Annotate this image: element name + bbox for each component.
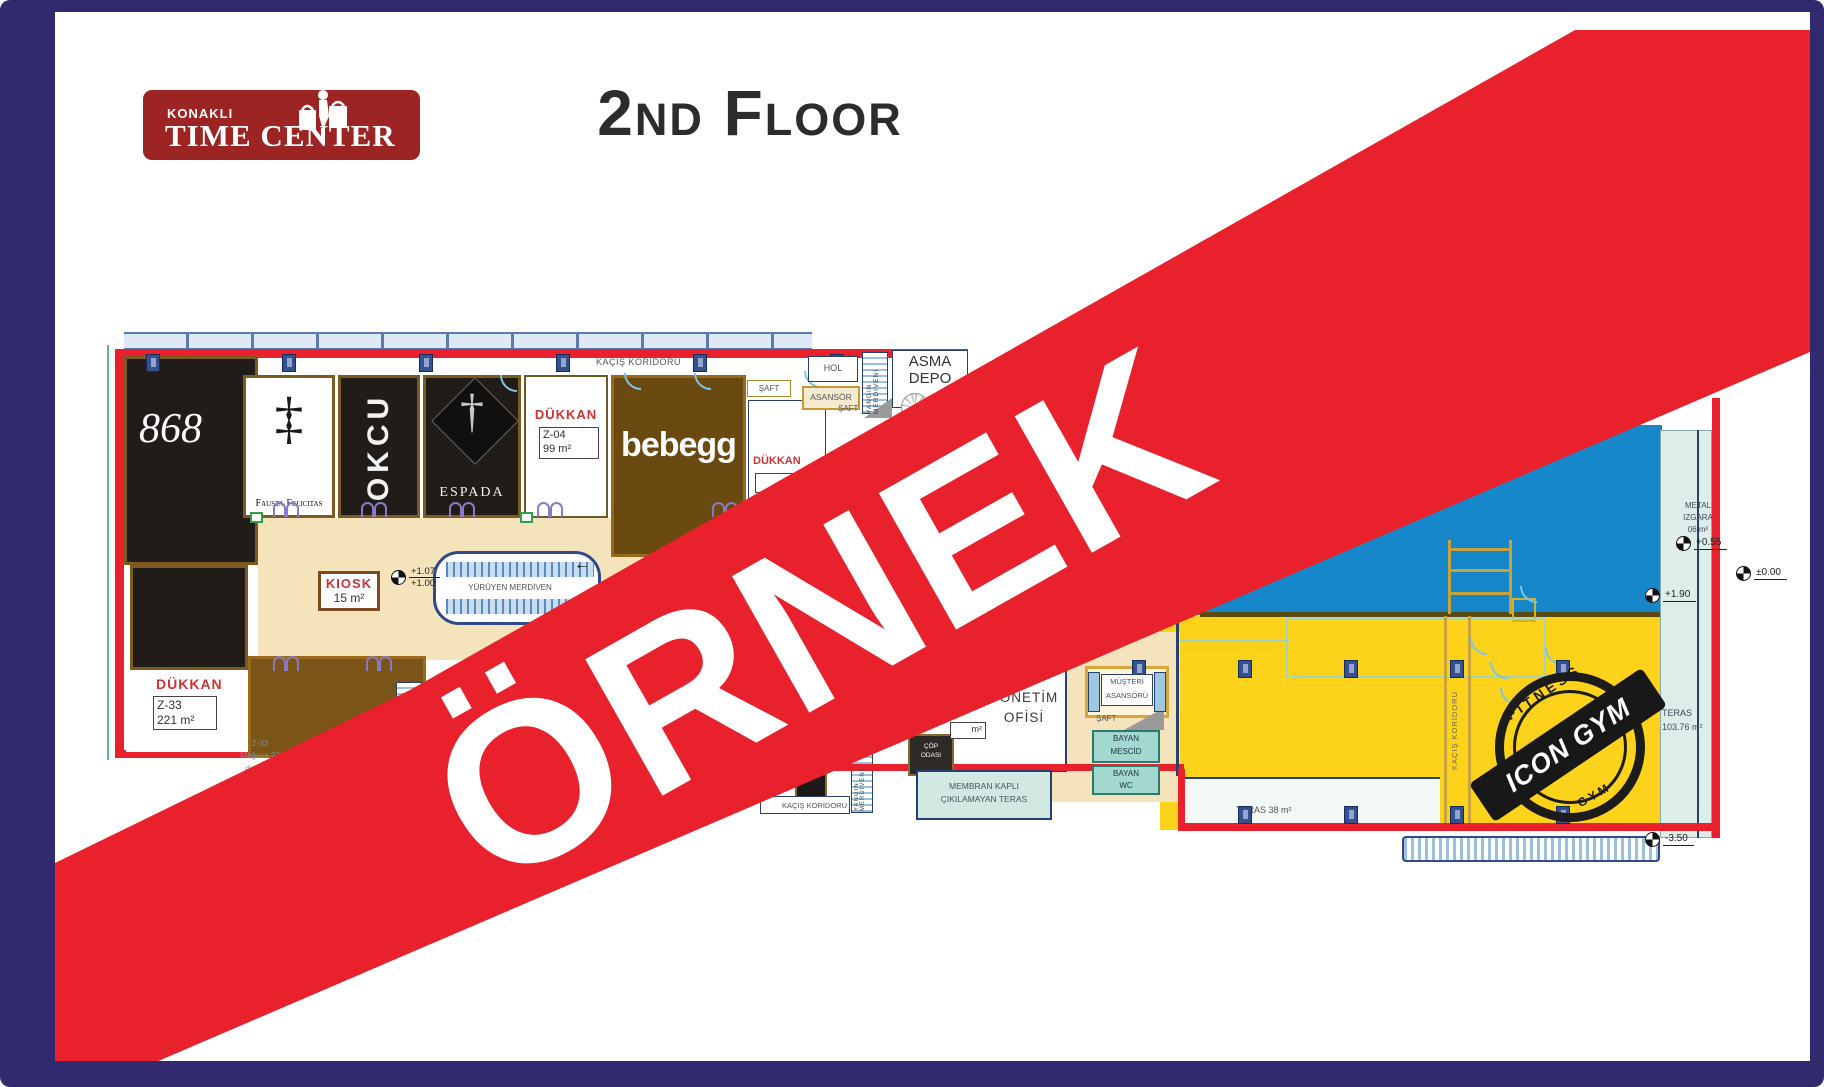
shaft-label-3: ŞAFT (1096, 714, 1116, 723)
asansor-label: ASANSÖR (804, 392, 858, 402)
yonetim-area-box: m² (950, 722, 986, 739)
column (1450, 806, 1464, 824)
column (1344, 806, 1358, 824)
column (146, 354, 160, 372)
door-clip-icon (250, 512, 263, 523)
page-title: 2nd Floor (560, 76, 940, 150)
shop-868-label: 868 (139, 405, 202, 453)
dukkan-z04-area-box: Z-04 99 m² (539, 427, 599, 459)
elevation-190: +1.90 (1663, 589, 1696, 602)
corridor-top-label: KAÇIŞ KORİDORU (596, 357, 726, 367)
elevation-000: ±0.00 (1754, 567, 1787, 580)
shop-dark-lower (130, 565, 248, 670)
membran-teras: MEMBRAN KAPLI ÇIKILAMAYAN TERAS (916, 770, 1052, 820)
room-hol: HOL (808, 356, 858, 382)
door-clip-icon (520, 512, 533, 523)
dukkan-z33-label: DÜKKAN (156, 676, 223, 692)
teal-line (1180, 640, 1290, 642)
fausta-monogram-icon: ‡ (246, 384, 332, 451)
plan-outline-step (1178, 769, 1185, 829)
dukkan-right-label: DÜKKAN (753, 455, 801, 467)
corridor-wall (1444, 616, 1447, 826)
level-icon (1645, 588, 1660, 603)
level-icon (1736, 566, 1751, 581)
room-bayan-wc: BAYAN WC (1092, 765, 1160, 795)
kiosk-box: KIOSK 15 m² (318, 571, 380, 611)
shaft-top-label: ŞAFT (748, 384, 790, 393)
membran-line1: MEMBRAN KAPLI (918, 780, 1050, 793)
cop-line1: ÇÖP (910, 742, 952, 751)
elevation-marker-000: ±0.00 (1736, 566, 1787, 581)
dukkan-z04-area: 99 m² (543, 443, 595, 457)
door-m-icon (273, 656, 299, 671)
plan-outline-bottom-right (1178, 823, 1718, 831)
door-m-icon (273, 502, 299, 517)
elevation-marker-190: +1.90 (1645, 588, 1696, 603)
koridor-box: KAÇIŞ KORİDORU (760, 796, 850, 814)
shop-dukkan-z04: DÜKKAN Z-04 99 m² (524, 375, 608, 518)
stair-structure (1448, 540, 1512, 614)
kiosk-area: 15 m² (321, 591, 377, 605)
elevation-100: +1.00 (409, 578, 440, 589)
shaft-room-top: ŞAFT (747, 380, 791, 397)
metal-izgara-label: METAL IZGARA 06 m² (1678, 500, 1718, 536)
dukkan-z33-area-box: Z-33 221 m² (153, 696, 217, 730)
metal-line2: IZGARA (1678, 512, 1718, 524)
bayan-label-2: BAYAN (1094, 768, 1158, 780)
dukkan-z33-area: 221 m² (157, 713, 213, 728)
exterior-stairs (1402, 836, 1660, 862)
bayan-label: BAYAN (1094, 733, 1158, 746)
shaft-label-2: ŞAFT (838, 404, 858, 413)
column (1238, 806, 1252, 824)
column (419, 354, 433, 372)
column (1344, 660, 1358, 678)
teras-right-strip (1660, 430, 1712, 838)
level-icon (1645, 832, 1660, 847)
asma-depo-label-1: ASMA (893, 354, 967, 371)
yonetim-line2: OFİSİ (985, 708, 1063, 728)
teras-right-line (1697, 430, 1699, 838)
plan-outer-green-line (107, 345, 109, 760)
door-m-icon (537, 502, 563, 517)
elevator-cab (1088, 672, 1100, 712)
shop-espada-label: ESPADA (426, 485, 518, 501)
door-m-icon (449, 502, 475, 517)
metal-line1: METAL (1678, 500, 1718, 512)
wall-line (1176, 618, 1179, 776)
plan-outline-right (1712, 398, 1720, 838)
zone-divider-wall (1200, 612, 1662, 617)
teras-right-line1: TERAS (1662, 706, 1712, 720)
escalator-steps (446, 562, 594, 577)
yangin-top-label: YANGIN MERDİVENİ (866, 354, 880, 414)
teras-right-label: TERAS 103.76 m² (1662, 706, 1712, 735)
hol-label: HOL (809, 363, 857, 373)
shopper-bags-icon (293, 86, 351, 144)
shop-bebegg-label: bebegg (614, 426, 743, 465)
espada-dagger-icon: † (426, 384, 518, 439)
elevation-marker-055: +0.55 (1676, 536, 1727, 551)
elevation-marker-107: +1.07 +1.00 (391, 566, 440, 589)
column (282, 354, 296, 372)
brand-logo: KONAKLI TIME CENTER (143, 90, 420, 160)
door-m-icon (366, 656, 392, 671)
teras-right-line2: 103.76 m² (1662, 720, 1712, 734)
metal-line3: 06 m² (1678, 524, 1718, 536)
teras-bottom-strip: TERAS 38 m² (1184, 777, 1440, 823)
kacis-vertical-label: KAÇIŞ KORİDORU (1450, 630, 1459, 770)
wc-label: WC (1094, 780, 1158, 792)
elevation-marker-350: -3.50 (1645, 832, 1694, 847)
escalator-arrow-icon: ← (574, 556, 590, 574)
corridor-wall (1468, 616, 1471, 826)
shop-okcu-label: OKCU (362, 392, 396, 500)
teal-zone-outline (1286, 618, 1546, 678)
shop-okcu: OKCU (338, 375, 420, 518)
brand-logo-large: TIME CENTER (165, 118, 396, 154)
mescid-label: MESCİD (1094, 746, 1158, 759)
shop-868: 868 (124, 356, 258, 565)
elevation-107: +1.07 (409, 566, 440, 578)
elevation-055: +0.55 (1694, 537, 1727, 550)
membran-line2: ÇIKILAMAYAN TERAS (918, 793, 1050, 806)
window-glazing-band (124, 332, 812, 350)
column (1238, 660, 1252, 678)
elevator-cab (1154, 672, 1166, 712)
dukkan-z04-code: Z-04 (543, 429, 595, 443)
shop-fausta-felicitas: ‡ Fausta Felicitas (243, 375, 335, 518)
column (556, 354, 570, 372)
elevation-350: -3.50 (1663, 833, 1694, 846)
cop-line2: ODASI (910, 751, 952, 760)
musteri-line2: ASANSÖRÜ (1102, 689, 1152, 703)
level-icon (391, 570, 406, 585)
dukkan-z33-code: Z-33 (157, 698, 213, 713)
koridor-box-label: KAÇIŞ KORİDORU (761, 801, 847, 810)
kiosk-label: KIOSK (321, 576, 377, 591)
level-icon (1676, 536, 1691, 551)
musteri-line1: MÜŞTERİ (1102, 675, 1152, 689)
escalator-label: YÜRÜYEN MERDİVEN (436, 583, 584, 592)
dukkan-z04-label: DÜKKAN (526, 407, 606, 422)
plan-outline-left (115, 349, 124, 758)
musteri-label-box: MÜŞTERİ ASANSÖRÜ (1101, 674, 1153, 706)
room-bayan-mescid: BAYAN MESCİD (1092, 730, 1160, 763)
door-m-icon (361, 502, 387, 517)
shop-espada: † ESPADA (423, 375, 521, 518)
